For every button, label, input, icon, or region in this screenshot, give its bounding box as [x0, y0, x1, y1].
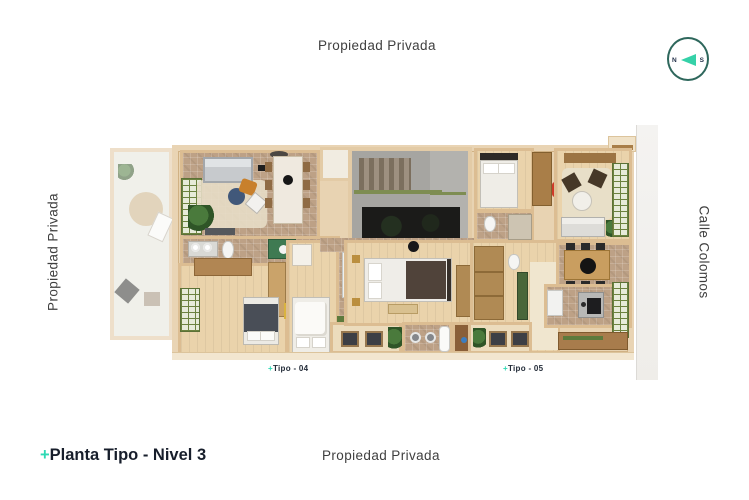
- closet: [194, 258, 252, 276]
- dining-chair: [303, 198, 310, 208]
- dining-table-05: [564, 250, 610, 280]
- shower-05: [508, 214, 532, 240]
- lounge-chair: [341, 331, 359, 347]
- dining-chair-black: [596, 243, 605, 250]
- balcony-plant: [473, 328, 486, 350]
- fridge: [547, 290, 563, 316]
- dining-chair: [265, 198, 272, 208]
- dining-chair-black: [581, 243, 590, 250]
- top-boundary-label: Propiedad Privada: [318, 38, 436, 53]
- title-text: Planta Tipo - Nivel 3: [50, 446, 206, 464]
- sofa-05: [561, 217, 605, 237]
- dining-table-04: [273, 156, 303, 224]
- bottom-boundary-label: Propiedad Privada: [322, 448, 440, 463]
- title-plus-icon: +: [40, 446, 50, 464]
- speaker: [408, 241, 419, 252]
- stair-rail-2: [430, 192, 466, 195]
- dining-bowl: [283, 175, 293, 185]
- terrace: [110, 148, 173, 340]
- sconce: [352, 298, 360, 306]
- dining-chair: [265, 162, 272, 172]
- lounge-chair: [365, 331, 383, 347]
- master-bed: [364, 258, 452, 302]
- toilet-05: [508, 254, 520, 270]
- glass-block-window-right-bottom: [612, 282, 629, 338]
- toilet: [484, 216, 496, 232]
- stove: [578, 292, 604, 318]
- green-cabinet: [517, 272, 528, 320]
- console-shelf: [564, 153, 616, 163]
- compass-arrow-icon: [681, 54, 696, 66]
- compass-south-label: S: [700, 57, 704, 64]
- dining-chair-black: [566, 243, 575, 250]
- dining-chair: [303, 180, 310, 190]
- wardrobe-05: [532, 152, 552, 206]
- bed-bench: [388, 304, 418, 314]
- right-street-label: Calle Colomos: [697, 206, 712, 299]
- lounge-chair: [511, 331, 529, 347]
- terrace-chair-2: [144, 292, 160, 306]
- compass: N S: [667, 37, 709, 81]
- round-table: [572, 191, 592, 211]
- elevator-void: [362, 207, 460, 239]
- dining-chair: [265, 180, 272, 190]
- stair-core: [348, 147, 472, 242]
- bed-2: [292, 297, 330, 353]
- stair-rail: [354, 190, 442, 194]
- sink: [425, 332, 436, 343]
- sink: [410, 332, 421, 343]
- bed-1: [243, 297, 279, 345]
- balcony-plant: [388, 327, 403, 351]
- balcony-04: [330, 322, 402, 354]
- floor-plan-render: [100, 120, 660, 388]
- sidewalk: [636, 125, 658, 380]
- shower-door: [439, 326, 450, 352]
- bath-counter-dark: [205, 228, 235, 235]
- sink: [203, 243, 212, 252]
- page-title: +Planta Tipo - Nivel 3: [40, 446, 206, 465]
- headboard: [480, 153, 518, 160]
- planter-bench: [558, 332, 628, 350]
- compass-north-label: N: [672, 57, 677, 64]
- lounge-chair: [489, 331, 507, 347]
- dining-chair: [303, 162, 310, 172]
- glass-block-window-right-top: [612, 163, 629, 237]
- balcony-05: [468, 322, 532, 354]
- toilet: [222, 241, 234, 259]
- bed-05: [480, 160, 518, 208]
- sink: [191, 243, 200, 252]
- terrace-plant: [118, 164, 134, 180]
- terrace-chair: [114, 278, 139, 303]
- sconce: [352, 255, 360, 263]
- bottom-facade: [172, 352, 634, 360]
- corridor-closets: [474, 246, 504, 320]
- left-boundary-label: Propiedad Privada: [46, 193, 61, 311]
- bedroom1-window: [180, 288, 200, 332]
- stairs: [359, 158, 411, 190]
- dresser: [292, 244, 312, 266]
